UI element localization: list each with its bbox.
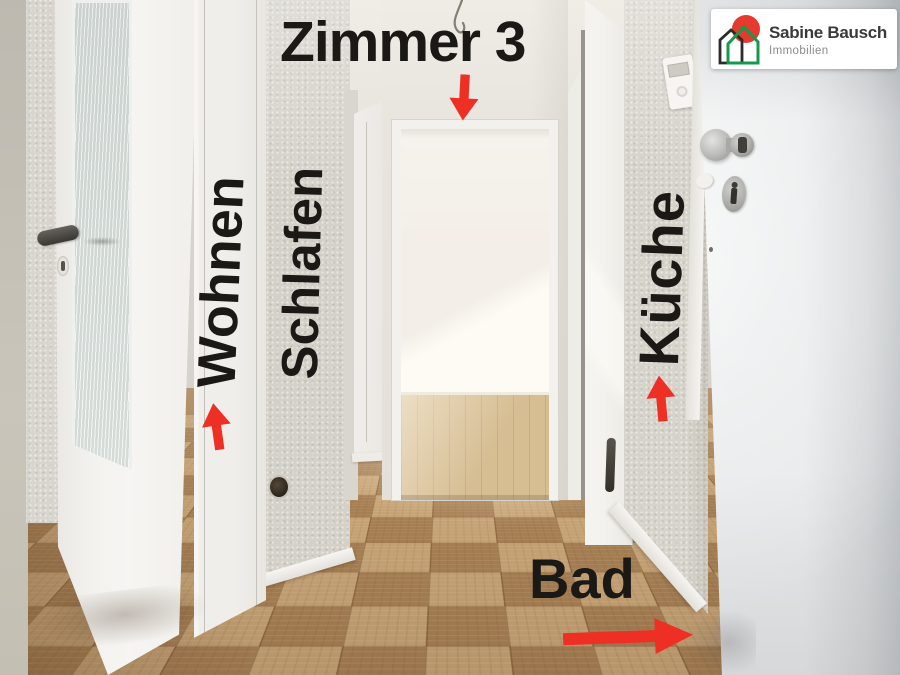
zimmer3-room	[401, 129, 549, 500]
wohnen-label: Wohnen	[189, 175, 252, 389]
frosted-glass-panel	[72, 0, 132, 470]
door-knob-grip	[738, 137, 747, 153]
zimmer3-threshold	[401, 495, 549, 500]
logo-name: Sabine Bausch	[769, 23, 887, 43]
entrance-door	[688, 0, 900, 675]
socket-hole	[270, 477, 288, 497]
zimmer3-room-floor	[401, 392, 549, 500]
logo-houses-icon	[717, 13, 763, 65]
screw-dot	[709, 247, 713, 252]
zimmer3-door-frame	[392, 120, 558, 500]
wohnen-keyhole	[57, 256, 69, 276]
door-molding	[366, 122, 367, 442]
keyhole-slot	[730, 188, 737, 204]
arrow-up-icon	[645, 374, 678, 422]
panel-groove	[256, 0, 257, 605]
door-shadow	[686, 610, 756, 675]
thermostat-display	[667, 62, 690, 78]
door-knob	[730, 133, 754, 157]
left-wall-edge	[0, 0, 28, 675]
agency-logo: Sabine Bausch Immobilien	[711, 9, 897, 69]
keyhole-slot	[61, 261, 65, 271]
kueche-door-jamb	[568, 48, 582, 500]
kueche-label: Küche	[631, 189, 693, 367]
hallway-photo: Zimmer 3 Wohnen Schlafen Küche Bad Sabin…	[0, 0, 900, 675]
kueche-door-handle	[605, 438, 616, 492]
thermostat-knob	[676, 85, 689, 98]
wohnen-door	[50, 0, 198, 675]
schlafen-label: Schlafen	[274, 166, 331, 380]
bad-label: Bad	[529, 551, 635, 607]
arrow-right-icon	[562, 617, 693, 658]
arrow-down-icon	[448, 74, 479, 121]
glass-reflection	[83, 237, 121, 246]
logo-subtitle: Immobilien	[769, 45, 829, 57]
zimmer3-label: Zimmer 3	[280, 14, 525, 71]
